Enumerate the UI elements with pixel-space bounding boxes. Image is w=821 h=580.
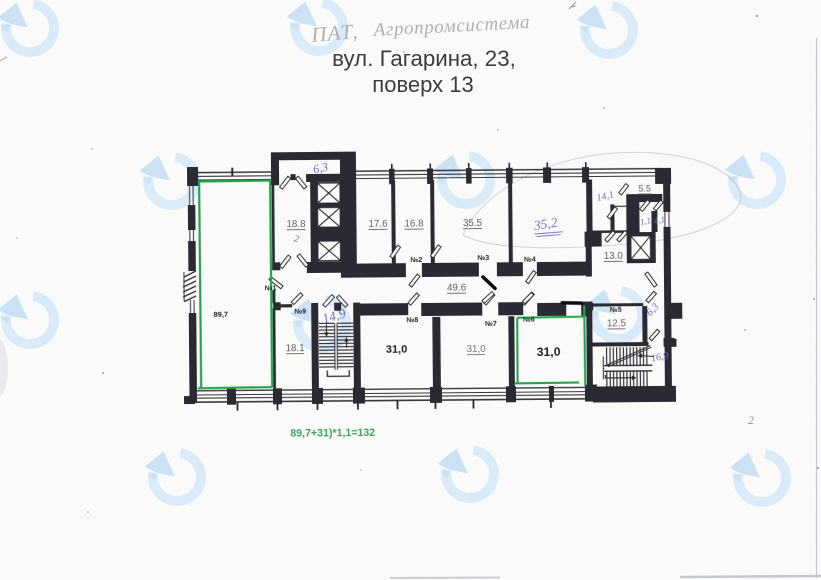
svg-text:35.5: 35.5 [463, 218, 483, 229]
svg-text:№2: №2 [410, 256, 422, 264]
svg-text:89,7+31)*1,1=132: 89,7+31)*1,1=132 [290, 427, 375, 440]
svg-text:№1: №1 [265, 284, 277, 292]
svg-text:4,1: 4,1 [653, 214, 666, 226]
svg-text:№9: №9 [294, 308, 306, 316]
svg-text:31,0: 31,0 [466, 344, 486, 355]
svg-text:поверх 13: поверх 13 [372, 72, 473, 97]
svg-text:ПАТ,: ПАТ, [309, 19, 359, 47]
svg-text:№7: №7 [485, 320, 497, 328]
svg-text:31,0: 31,0 [386, 344, 408, 356]
svg-text:16.8: 16.8 [404, 219, 424, 230]
svg-text:49.6: 49.6 [447, 283, 467, 294]
svg-text:18.1: 18.1 [285, 343, 304, 354]
svg-text:31,0: 31,0 [537, 345, 561, 359]
svg-text:1,1: 1,1 [639, 215, 652, 227]
svg-text:12.5: 12.5 [607, 318, 627, 329]
svg-text:89,7: 89,7 [213, 310, 228, 319]
svg-text:№3: №3 [477, 254, 489, 262]
svg-text:вул. Гагарина, 23,: вул. Гагарина, 23, [332, 46, 516, 71]
svg-text:№6: №6 [523, 316, 535, 324]
svg-text:17.6: 17.6 [368, 219, 388, 230]
svg-text:№4: №4 [524, 256, 536, 264]
svg-text:18.8: 18.8 [286, 219, 306, 230]
svg-text:13.0: 13.0 [604, 251, 624, 262]
svg-text:№8: №8 [406, 316, 418, 324]
svg-text:№5: №5 [610, 306, 622, 314]
svg-text:2: 2 [748, 413, 754, 427]
svg-text:5.5: 5.5 [638, 184, 651, 194]
